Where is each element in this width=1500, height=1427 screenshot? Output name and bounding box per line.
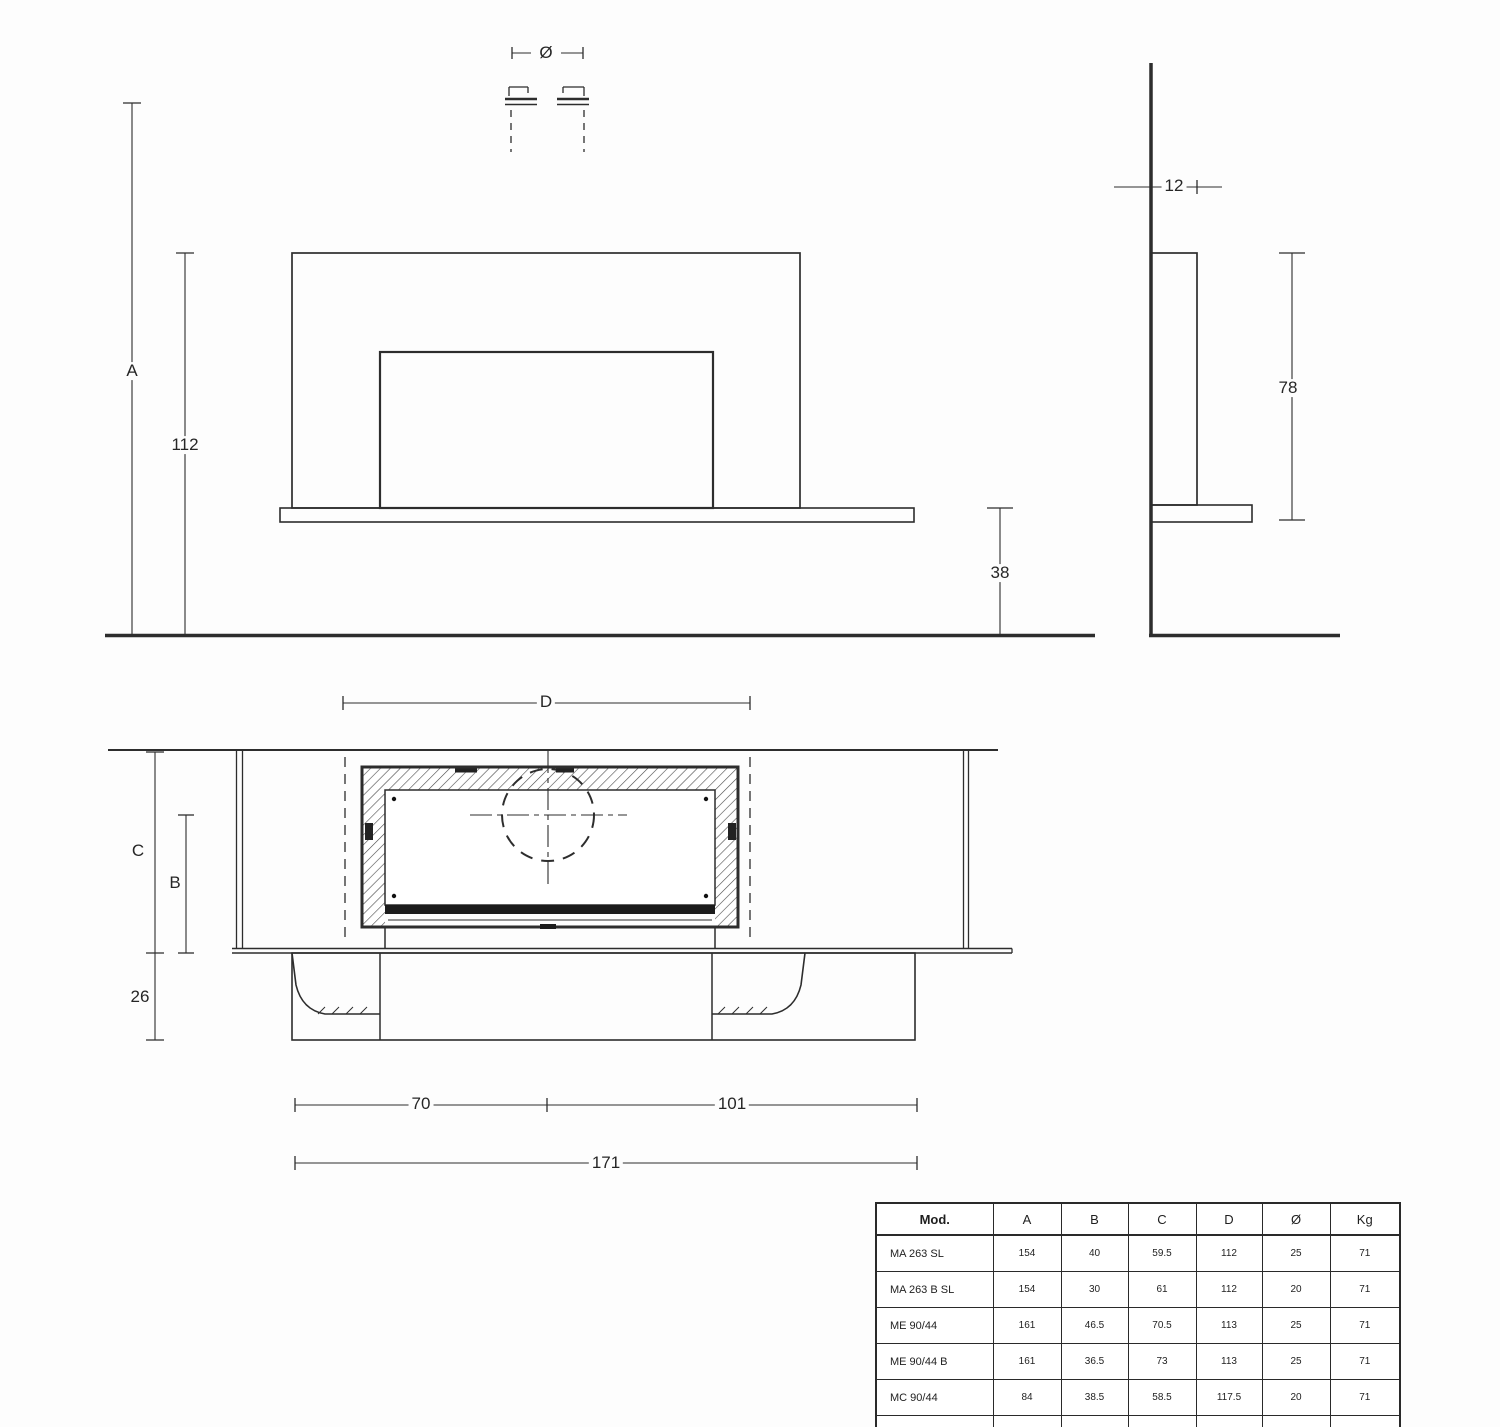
spec-value-cell: 58.5 [1128,1380,1196,1416]
spec-value-cell: 71 [1330,1344,1400,1380]
dim-label-26: 26 [128,988,153,1006]
spec-value-cell: 20 [1262,1272,1330,1308]
spec-model-cell: MA 263 SL [876,1235,993,1272]
spec-value-cell: 71 [1330,1272,1400,1308]
table-row: ME 90/44 B16136.5731132571 [876,1344,1400,1380]
spec-table-header-cell: Ø [1262,1203,1330,1235]
dim-label-171: 171 [589,1154,623,1172]
spec-model-cell: ME 90/44 [876,1308,993,1344]
spec-value-cell: 154 [993,1272,1061,1308]
spec-model-cell: MA 263 B SL [876,1272,993,1308]
spec-table-header-cell: Mod. [876,1203,993,1235]
spec-value-cell: 103 [1196,1416,1262,1427]
table-row: MC 90/448438.558.5117.52071 [876,1380,1400,1416]
spec-value-cell: 25 [1262,1344,1330,1380]
spec-model-cell: IG 90 [876,1416,993,1427]
spec-table-header-cell: Kg [1330,1203,1400,1235]
table-row: IG 9091.532.5501031571 [876,1416,1400,1427]
spec-table-container: Mod.ABCDØKgMA 263 SL1544059.51122571MA 2… [875,1202,1401,1427]
spec-value-cell: 59.5 [1128,1235,1196,1272]
spec-value-cell: 112 [1196,1272,1262,1308]
spec-value-cell: 38.5 [1061,1380,1128,1416]
spec-table-header-row: Mod.ABCDØKg [876,1203,1400,1235]
spec-model-cell: ME 90/44 B [876,1344,993,1380]
dim-label-78: 78 [1276,379,1301,397]
dim-label-38: 38 [988,564,1013,582]
table-row: MA 263 B SL15430611122071 [876,1272,1400,1308]
dim-label-112: 112 [168,436,201,454]
spec-value-cell: 32.5 [1061,1416,1128,1427]
dim-label-flue-diameter: Ø [536,44,555,62]
dim-label-c: C [129,842,147,860]
spec-value-cell: 46.5 [1061,1308,1128,1344]
spec-table-header-cell: A [993,1203,1061,1235]
table-row: ME 90/4416146.570.51132571 [876,1308,1400,1344]
dim-label-12: 12 [1162,177,1187,195]
spec-table-header-cell: D [1196,1203,1262,1235]
spec-table-header-cell: C [1128,1203,1196,1235]
spec-value-cell: 161 [993,1308,1061,1344]
spec-model-cell: MC 90/44 [876,1380,993,1416]
spec-value-cell: 113 [1196,1308,1262,1344]
dim-label-b: B [166,874,183,892]
spec-table: Mod.ABCDØKgMA 263 SL1544059.51122571MA 2… [875,1202,1401,1427]
spec-value-cell: 71 [1330,1308,1400,1344]
spec-value-cell: 117.5 [1196,1380,1262,1416]
dim-label-overall-height-a: A [123,362,140,380]
spec-value-cell: 71 [1330,1235,1400,1272]
spec-value-cell: 61 [1128,1272,1196,1308]
spec-value-cell: 112 [1196,1235,1262,1272]
spec-value-cell: 36.5 [1061,1344,1128,1380]
spec-value-cell: 71 [1330,1416,1400,1427]
spec-value-cell: 84 [993,1380,1061,1416]
spec-value-cell: 73 [1128,1344,1196,1380]
dim-label-101: 101 [715,1095,749,1113]
spec-value-cell: 71 [1330,1380,1400,1416]
technical-drawing-page: Ø A 112 38 12 78 D C B 26 70 101 171 Mod… [0,0,1500,1427]
spec-value-cell: 161 [993,1344,1061,1380]
spec-value-cell: 91.5 [993,1416,1061,1427]
dim-label-70: 70 [409,1095,434,1113]
spec-value-cell: 40 [1061,1235,1128,1272]
spec-value-cell: 15 [1262,1416,1330,1427]
spec-value-cell: 25 [1262,1308,1330,1344]
spec-value-cell: 50 [1128,1416,1196,1427]
dim-label-d: D [537,693,555,711]
spec-value-cell: 154 [993,1235,1061,1272]
spec-value-cell: 113 [1196,1344,1262,1380]
spec-value-cell: 20 [1262,1380,1330,1416]
spec-table-header-cell: B [1061,1203,1128,1235]
spec-value-cell: 30 [1061,1272,1128,1308]
spec-value-cell: 25 [1262,1235,1330,1272]
table-row: MA 263 SL1544059.51122571 [876,1235,1400,1272]
spec-value-cell: 70.5 [1128,1308,1196,1344]
